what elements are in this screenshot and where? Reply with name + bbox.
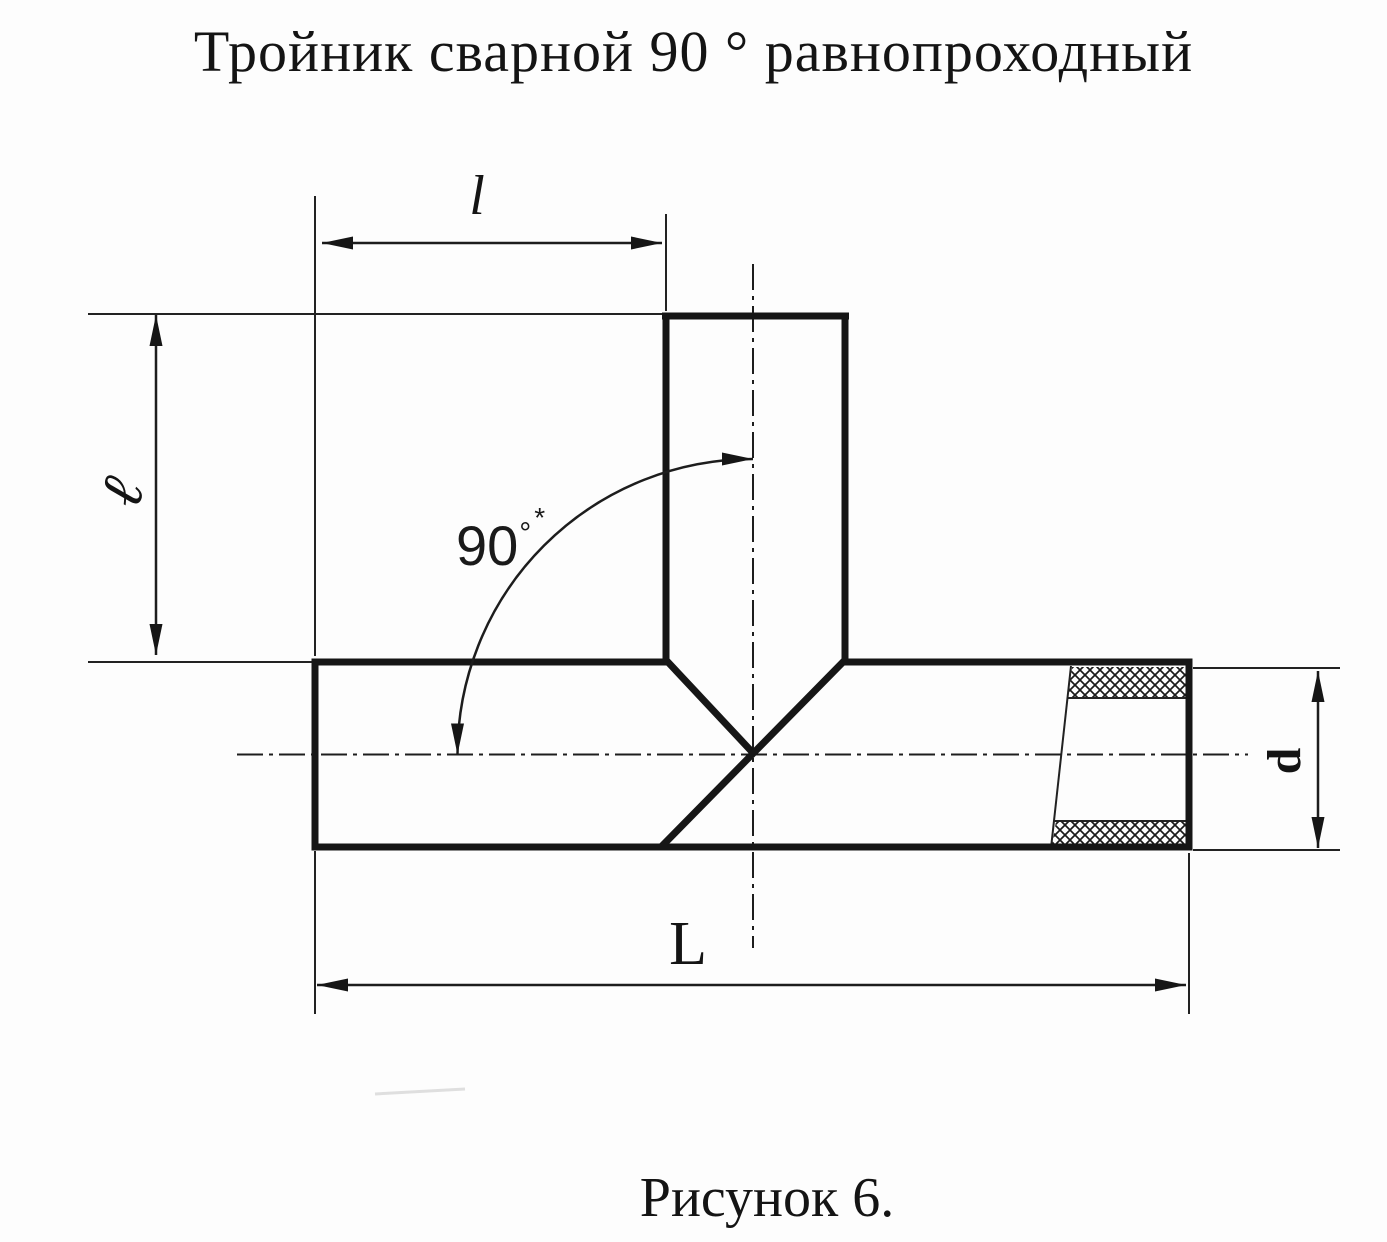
dim-label-overall-length: L [669, 913, 707, 975]
dimension-lines [156, 243, 1318, 985]
wall-section-top [1068, 667, 1189, 698]
angle-label: 90°* [456, 518, 545, 574]
scan-artifact [375, 1089, 465, 1094]
dim-label-diameter: d [1261, 748, 1309, 775]
figure-caption: Рисунок 6. [640, 1166, 894, 1230]
angle-value: 90 [456, 514, 518, 577]
drawing-sheet: Тройник сварной 90 ° равнопроходный [0, 0, 1387, 1242]
angle-footnote-asterisk: * [534, 502, 545, 533]
tee-diagram [0, 0, 1387, 1242]
wall-section-bottom [1052, 821, 1189, 846]
weld-chamfer-left [666, 660, 754, 754]
section-hatch [1051, 666, 1189, 848]
dim-label-branch-length: l [469, 168, 485, 224]
degree-sign: ° [519, 517, 531, 550]
